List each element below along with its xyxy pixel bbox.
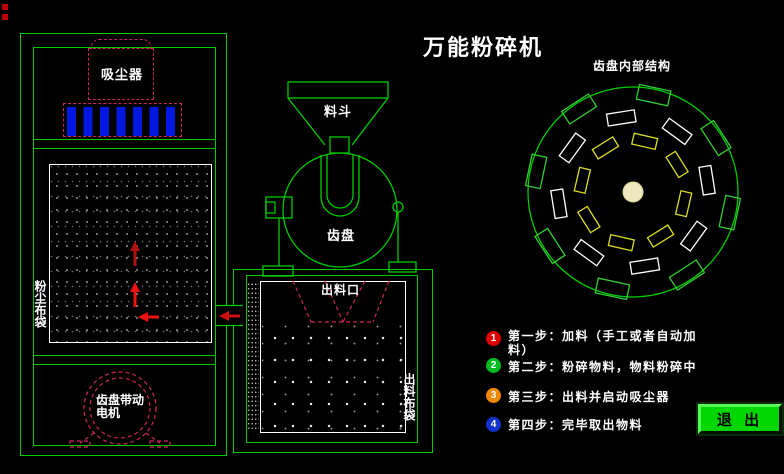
wheel-caption: 齿盘内部结构: [593, 60, 671, 73]
corner-marker-1: [2, 4, 8, 10]
wheel-hub: [623, 182, 643, 202]
shelf-top: [34, 139, 216, 149]
outlet-label: 出料口: [321, 284, 360, 297]
wheel-teeth: [526, 85, 741, 300]
step-2-text: 第二步：粉碎物料，物料粉碎中: [508, 360, 697, 374]
vacuum-label: 吸尘器: [101, 68, 143, 81]
step-2-badge: 2: [486, 358, 501, 373]
gear-wheel: [526, 85, 741, 300]
hopper-label: 料斗: [324, 105, 352, 118]
step-3-badge: 3: [486, 388, 501, 403]
exit-button[interactable]: 退 出: [698, 404, 782, 434]
discharge-material: [262, 325, 404, 431]
app-window: 万能粉碎机 吸尘器 粉尘布袋 齿盘带动电机 料斗 齿盘 出料口 出料布袋 齿盘内…: [0, 0, 784, 474]
page-title: 万能粉碎机: [423, 30, 543, 62]
step-4-badge: 4: [486, 417, 501, 432]
step-1-text: 第一步：加料（手工或者自动加料）: [508, 329, 706, 357]
step-1-badge: 1: [486, 331, 501, 346]
motor-label: 齿盘带动电机: [96, 394, 146, 420]
outlet-bag-label: 出料布袋: [403, 373, 415, 421]
step-3-text: 第三步：出料并启动吸尘器: [508, 390, 670, 404]
shelf-bottom: [34, 355, 216, 365]
dust-chamber: [49, 164, 212, 343]
step-4-text: 第四步：完毕取出物料: [508, 418, 643, 432]
dust-bag-label: 粉尘布袋: [34, 280, 46, 328]
filter-bars: [67, 107, 180, 136]
corner-marker-2: [2, 14, 8, 20]
gear-disk-label: 齿盘: [327, 229, 355, 242]
dust-strip: [247, 282, 259, 432]
